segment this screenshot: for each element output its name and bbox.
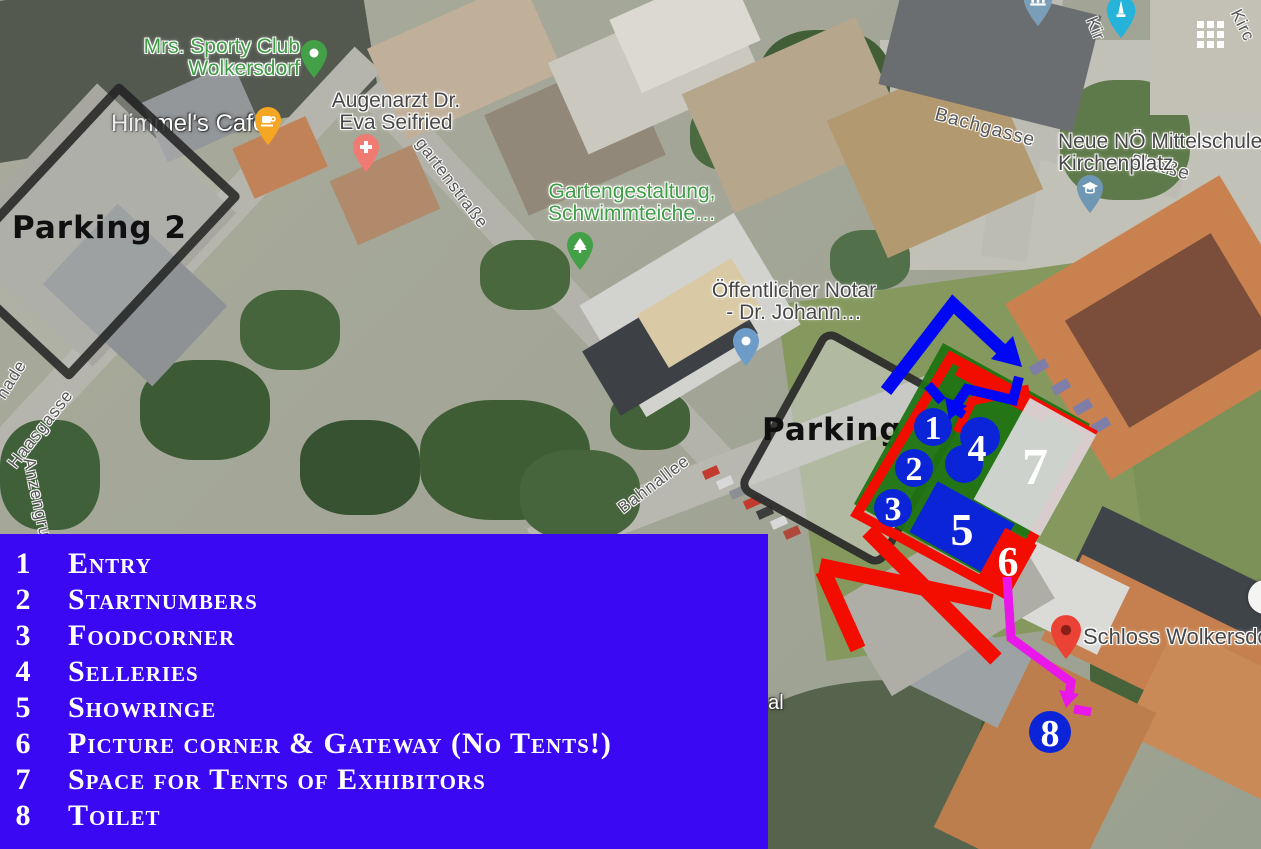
legend-number: 3 [0, 618, 46, 654]
toilet-path-dash [1074, 709, 1091, 712]
school-pin[interactable] [1077, 175, 1103, 213]
building [548, 0, 762, 154]
apps-grid-icon[interactable] [1197, 21, 1224, 48]
legend-label: Toilet [68, 798, 161, 834]
legend-label: Entry [68, 546, 152, 582]
street-label-promenade: nade [0, 357, 31, 403]
monument-pin[interactable] [1106, 0, 1136, 38]
parking-1-label: Parking 1 [762, 412, 937, 448]
building [609, 0, 760, 93]
legend-label: Selleries [68, 654, 199, 690]
parked-car [1091, 416, 1112, 434]
barrier-red-bar [823, 571, 858, 649]
schloss-pin[interactable] [1051, 614, 1081, 660]
poi-line: Schwimmteiche… [548, 203, 716, 225]
street-label-anzengruber: Anzengru [18, 456, 54, 539]
poi-label-sporty-club[interactable]: Mrs. Sporty Club Wolkersdorf [128, 36, 300, 80]
dot-icon [310, 49, 319, 58]
terrain-sports-court [0, 0, 380, 165]
legend-row: 3Foodcorner [0, 618, 768, 654]
legend-row: 4Selleries [0, 654, 768, 690]
poi-label-augenarzt[interactable]: Augenarzt Dr. Eva Seifried [330, 90, 462, 134]
poi-label-gartengestaltung[interactable]: Gartengestaltung, Schwimmteiche… [548, 181, 716, 225]
event-map-screenshot: Haasgasse gartenstraße Bahnallee Bachgas… [0, 0, 1261, 849]
poi-line: Neue NÖ Mittelschule [1058, 131, 1261, 153]
legend-number: 5 [0, 690, 46, 726]
trees [140, 360, 270, 460]
building [827, 52, 1043, 258]
entry-zigzag-arrow [957, 377, 1019, 404]
building-church [878, 0, 1101, 132]
poi-line: - Dr. Johann… [708, 302, 880, 324]
parked-car [783, 525, 801, 540]
legend-label: Showringe [68, 690, 216, 726]
zone-7-tent-space [974, 398, 1097, 536]
trees [300, 420, 420, 515]
legend-panel: 1Entry 2Startnumbers 3Foodcorner 4Seller… [0, 534, 768, 849]
garden-tree-pin[interactable] [567, 232, 593, 270]
trees [690, 100, 770, 170]
building-monastery-inner [1065, 233, 1261, 428]
parking-1-area [735, 326, 970, 569]
parking-2-label: Parking 2 [12, 210, 187, 246]
legend-number: 8 [0, 798, 46, 834]
building-schloss [934, 647, 1156, 849]
barrier-red-bar [820, 566, 992, 602]
legend-row: 5Showringe [0, 690, 768, 726]
poi-line: Gartengestaltung, [548, 181, 716, 203]
coffee-cup-icon [261, 116, 275, 127]
cafe-pin[interactable] [255, 107, 281, 145]
poi-line: Kirchenplatz [1058, 153, 1261, 175]
legend-label: Startnumbers [68, 582, 258, 618]
building-monastery [1005, 175, 1261, 479]
parked-car [716, 475, 734, 490]
boundary-red-inner-corner [957, 389, 1029, 432]
legend-row: 6Picture corner & Gateway (No Tents!) [0, 726, 768, 762]
legend-number: 4 [0, 654, 46, 690]
poi-label-notar[interactable]: Öffentlicher Notar - Dr. Johann… [708, 280, 880, 324]
road-gartenstrasse [359, 77, 732, 473]
legend-label: Space for Tents of Exhibitors [68, 762, 486, 798]
poi-line: Mrs. Sporty Club [128, 36, 300, 58]
legend-label: Picture corner & Gateway (No Tents!) [68, 726, 612, 762]
columns-icon [1030, 0, 1045, 6]
street-label-bachgasse: Bachgasse [932, 104, 1037, 152]
street-label-gartenstrasse: gartenstraße [411, 134, 492, 233]
parked-car [1029, 358, 1050, 376]
zone-5-showring [909, 481, 1014, 574]
trees [610, 390, 690, 450]
notar-pin[interactable] [733, 328, 759, 366]
dot-icon [742, 337, 751, 346]
trees [760, 30, 890, 130]
trees [240, 290, 340, 370]
poi-label-schloss[interactable]: Schloss Wolkersdorf [1083, 626, 1261, 648]
legend-row: 7Space for Tents of Exhibitors [0, 762, 768, 798]
building [908, 612, 1033, 728]
parked-car [1051, 378, 1072, 396]
zone-4-selleries [960, 417, 1000, 457]
sporty-club-pin[interactable] [301, 40, 327, 78]
legend-number: 1 [0, 546, 46, 582]
legend-label: Foodcorner [68, 618, 235, 654]
zone-7-number: 7 [1022, 439, 1048, 496]
zone-4-selleries-b [945, 445, 983, 483]
bank-pin[interactable] [1023, 0, 1053, 26]
poi-line: Augenarzt Dr. [330, 90, 462, 112]
legend-number: 6 [0, 726, 46, 762]
trees [980, 680, 1130, 810]
toilet-path-arrowhead [1059, 690, 1079, 708]
terrain-grass-right [1080, 350, 1261, 590]
legend-row: 1Entry [0, 546, 768, 582]
legend-row: 2Startnumbers [0, 582, 768, 618]
poi-line: Öffentlicher Notar [708, 280, 880, 302]
clipped-map-pin [1248, 580, 1261, 614]
legend-row: 8Toilet [0, 798, 768, 834]
zone-5-number: 5 [951, 504, 974, 555]
dot-icon [1061, 625, 1071, 635]
zone-8-number: 8 [1041, 713, 1060, 755]
legend-number: 7 [0, 762, 46, 798]
street-label-haasgasse: Haasgasse [4, 386, 78, 472]
parked-car [702, 465, 720, 480]
terrain-pond [730, 680, 1090, 849]
parked-car [1073, 398, 1094, 416]
poi-label-mittelschule[interactable]: Neue NÖ Mittelschule Kirchenplatz [1058, 131, 1261, 175]
street-label-kir-fragment: Kir [1081, 14, 1108, 44]
street-label-kirc-fragment: Kirc [1226, 6, 1259, 45]
building-schloss-dark [1072, 506, 1261, 674]
zone-6-picture-corner [979, 528, 1037, 593]
trees [420, 400, 590, 520]
zone-8-toilet [1029, 711, 1071, 753]
zone-4-number: 4 [968, 428, 987, 470]
entry-route-arrowhead [991, 336, 1022, 367]
health-pin[interactable] [353, 134, 379, 172]
building-schloss [1123, 624, 1261, 815]
poi-line: Wolkersdorf [128, 58, 300, 80]
street-label-bahnallee: Bahnallee [614, 451, 694, 518]
zone-6-number: 6 [998, 540, 1019, 586]
trees [480, 240, 570, 310]
legend-number: 2 [0, 582, 46, 618]
poi-line: Eva Seifried [330, 112, 462, 134]
boundary-red-inner-top [957, 371, 1046, 419]
